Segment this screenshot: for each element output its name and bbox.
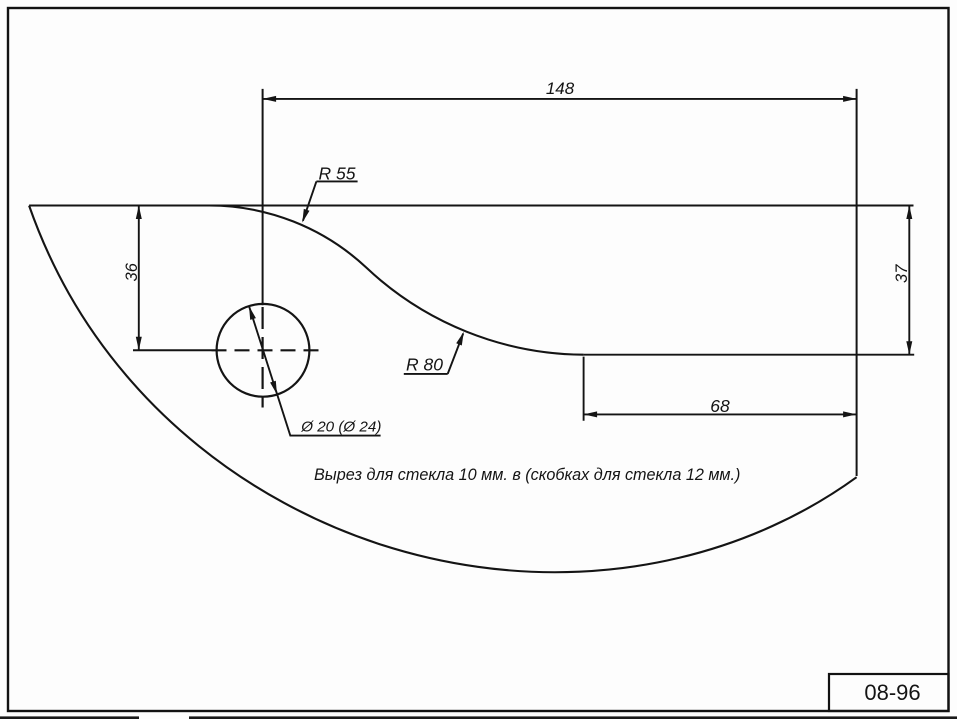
svg-text:Вырез для стекла 10 мм. в (ско: Вырез для стекла 10 мм. в (скобках для с… [314, 466, 740, 484]
svg-text:08-96: 08-96 [864, 680, 920, 705]
svg-text:36: 36 [123, 262, 141, 281]
svg-text:R 55: R 55 [319, 164, 356, 184]
svg-text:R 80: R 80 [406, 355, 443, 375]
svg-text:68: 68 [710, 396, 730, 416]
svg-text:37: 37 [893, 264, 911, 283]
svg-text:Ø 20 (Ø 24): Ø 20 (Ø 24) [300, 419, 381, 436]
svg-text:148: 148 [546, 79, 575, 98]
